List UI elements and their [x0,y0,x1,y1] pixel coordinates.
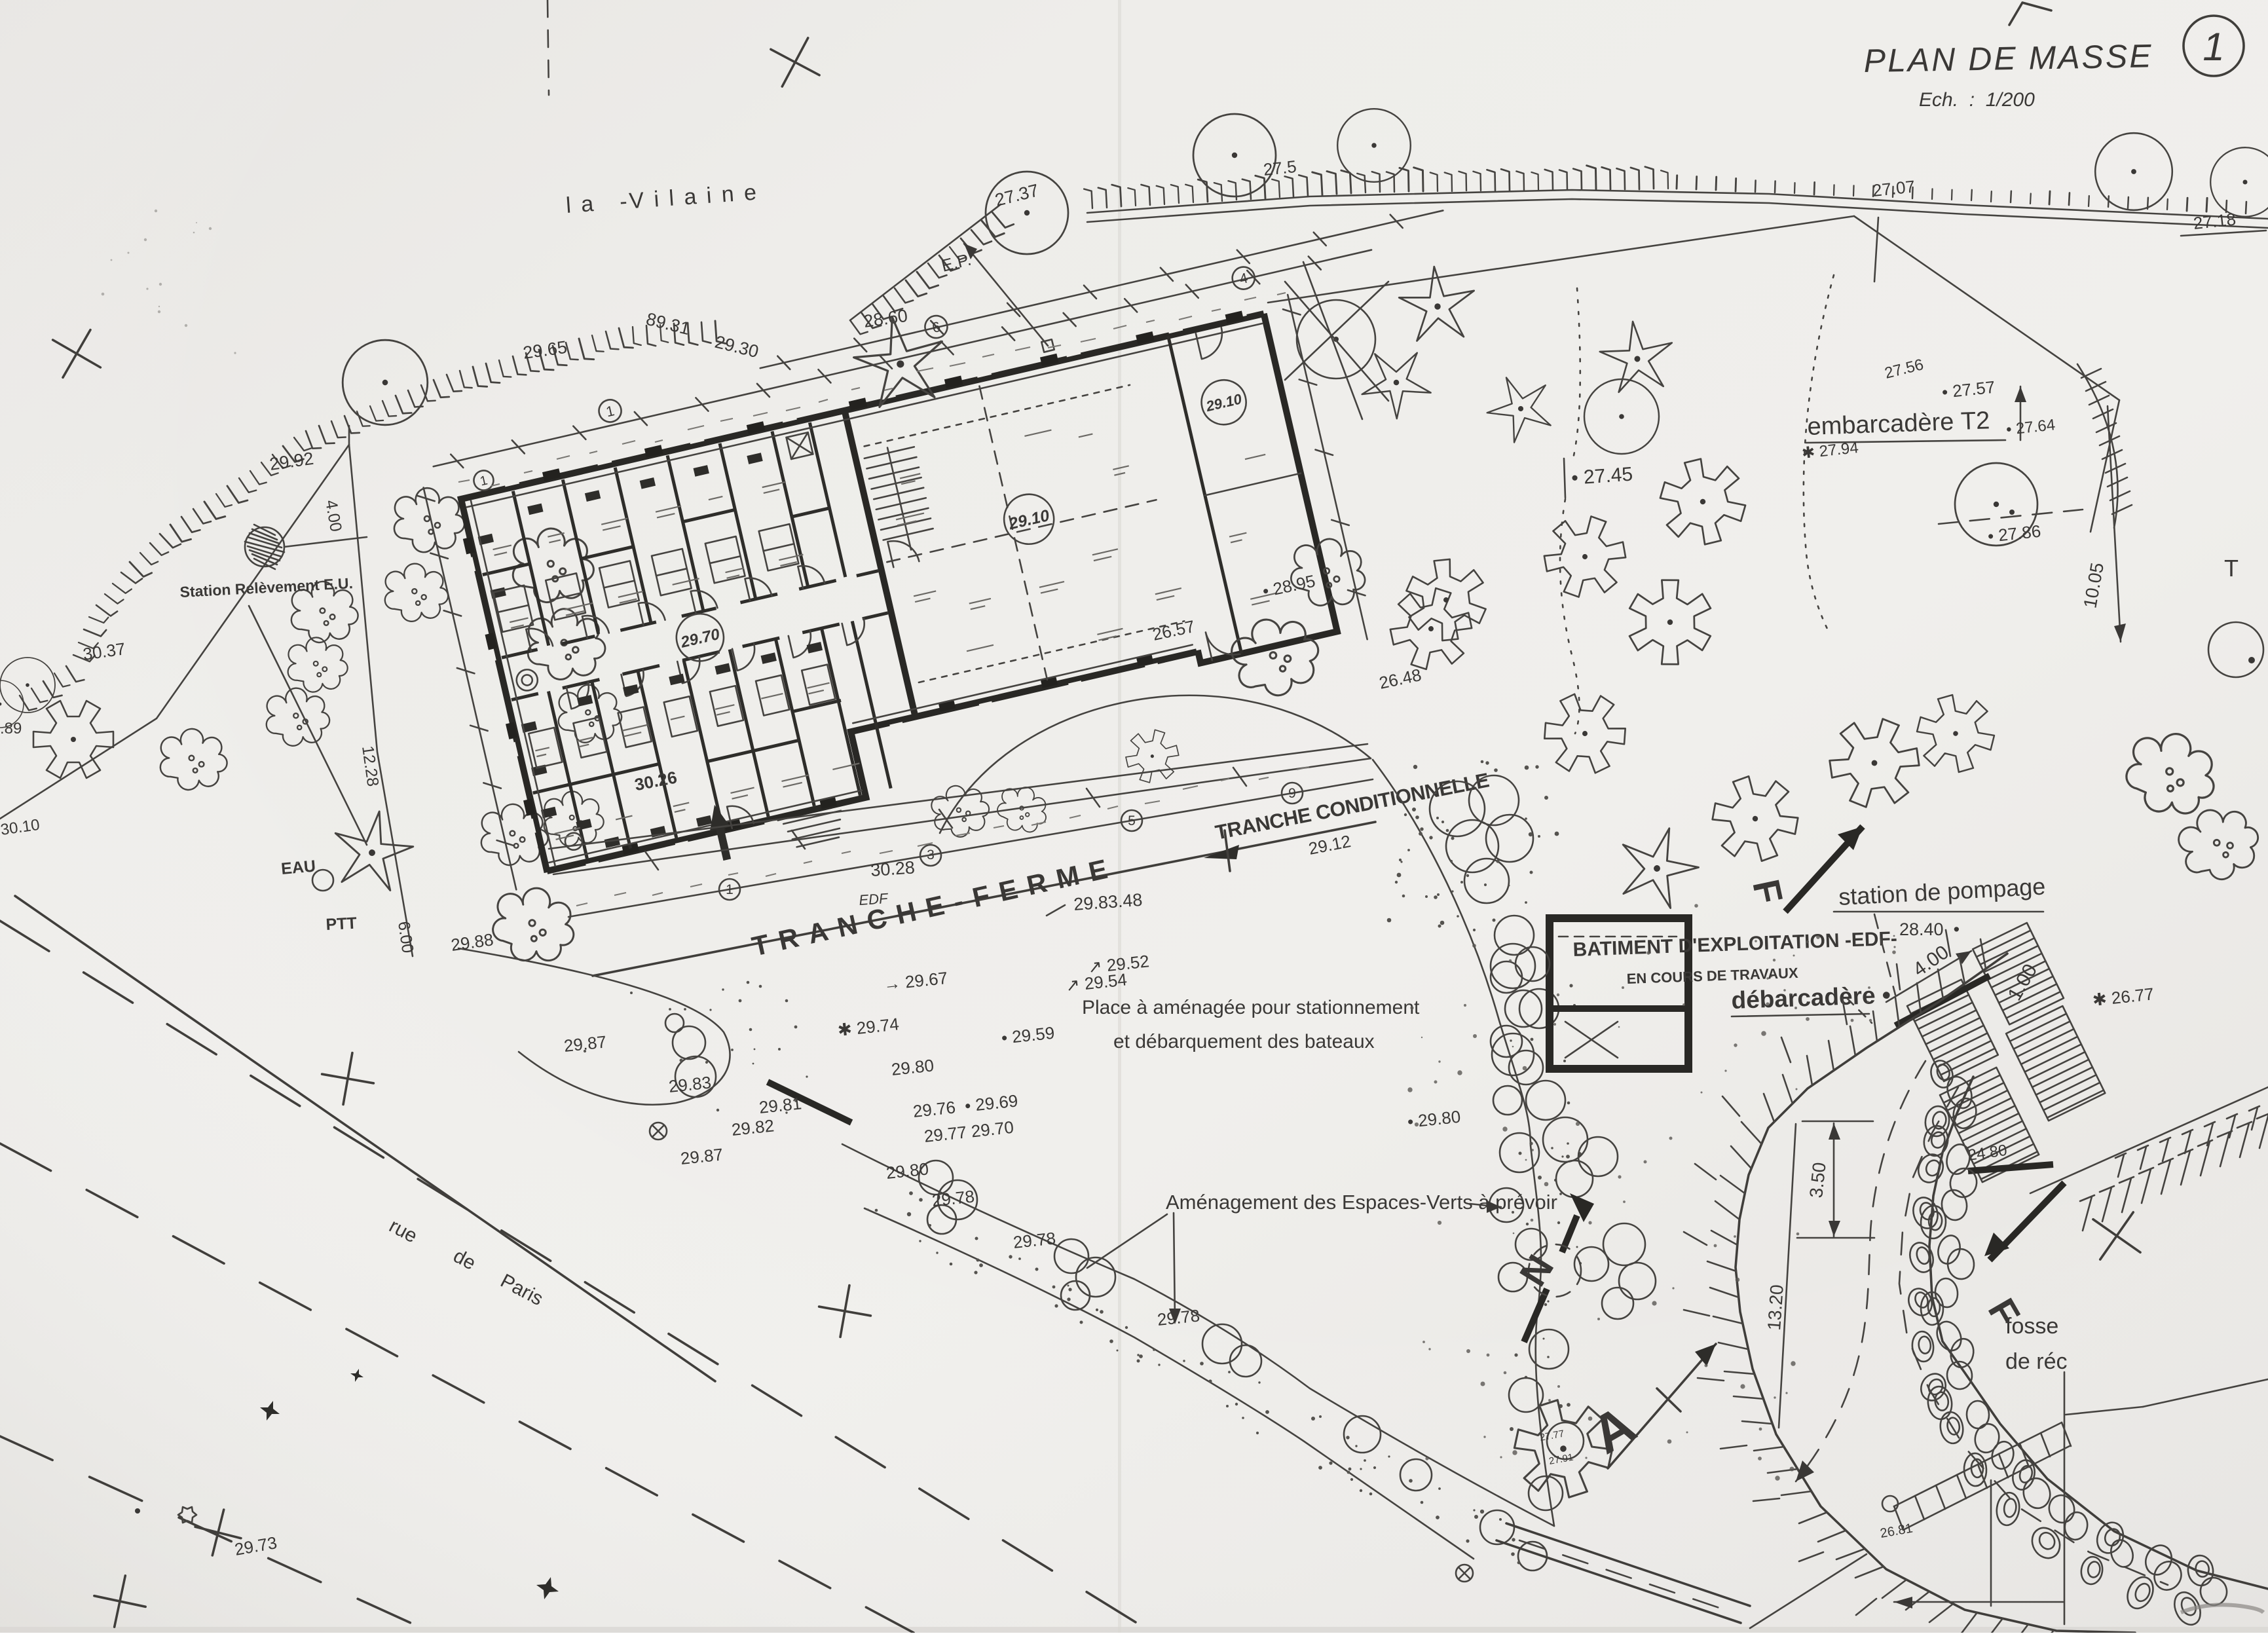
svg-text:débarcadère •: débarcadère • [1731,982,1891,1014]
svg-text:fosse: fosse [2005,1314,2058,1339]
svg-text:PTT: PTT [325,914,358,934]
svg-text:.89: .89 [0,720,22,737]
svg-text:• 27.45: • 27.45 [1571,464,1633,489]
svg-text:28.40 •: 28.40 • [1899,920,1960,939]
svg-text:Aménagement des Espaces-Verts: Aménagement des Espaces-Verts à prévoir [1166,1191,1557,1214]
svg-text:PLAN DE MASSE: PLAN DE MASSE [1863,37,2153,79]
svg-text:T: T [2224,555,2239,582]
svg-text:3.50: 3.50 [1806,1161,1830,1199]
svg-text:EDF: EDF [859,890,889,908]
svg-text:Ech. : 1/200: Ech. : 1/200 [1919,89,2035,111]
svg-text:30.28: 30.28 [870,857,916,880]
svg-text:5: 5 [1128,813,1136,828]
svg-text:27.5: 27.5 [1262,157,1297,179]
svg-text:3: 3 [927,847,935,863]
svg-text:EAU: EAU [280,857,316,878]
svg-text:et débarquement des bateaux: et débarquement des bateaux [1113,1031,1375,1052]
svg-text:Place à aménagée pour stationn: Place à aménagée pour stationnement [1082,997,1420,1018]
svg-text:1: 1 [2203,25,2224,69]
svg-text:13.20: 13.20 [1764,1284,1787,1331]
svg-text:de réc: de réc [2005,1349,2068,1374]
svg-text:1: 1 [726,882,734,897]
svg-text:9: 9 [1288,786,1296,801]
